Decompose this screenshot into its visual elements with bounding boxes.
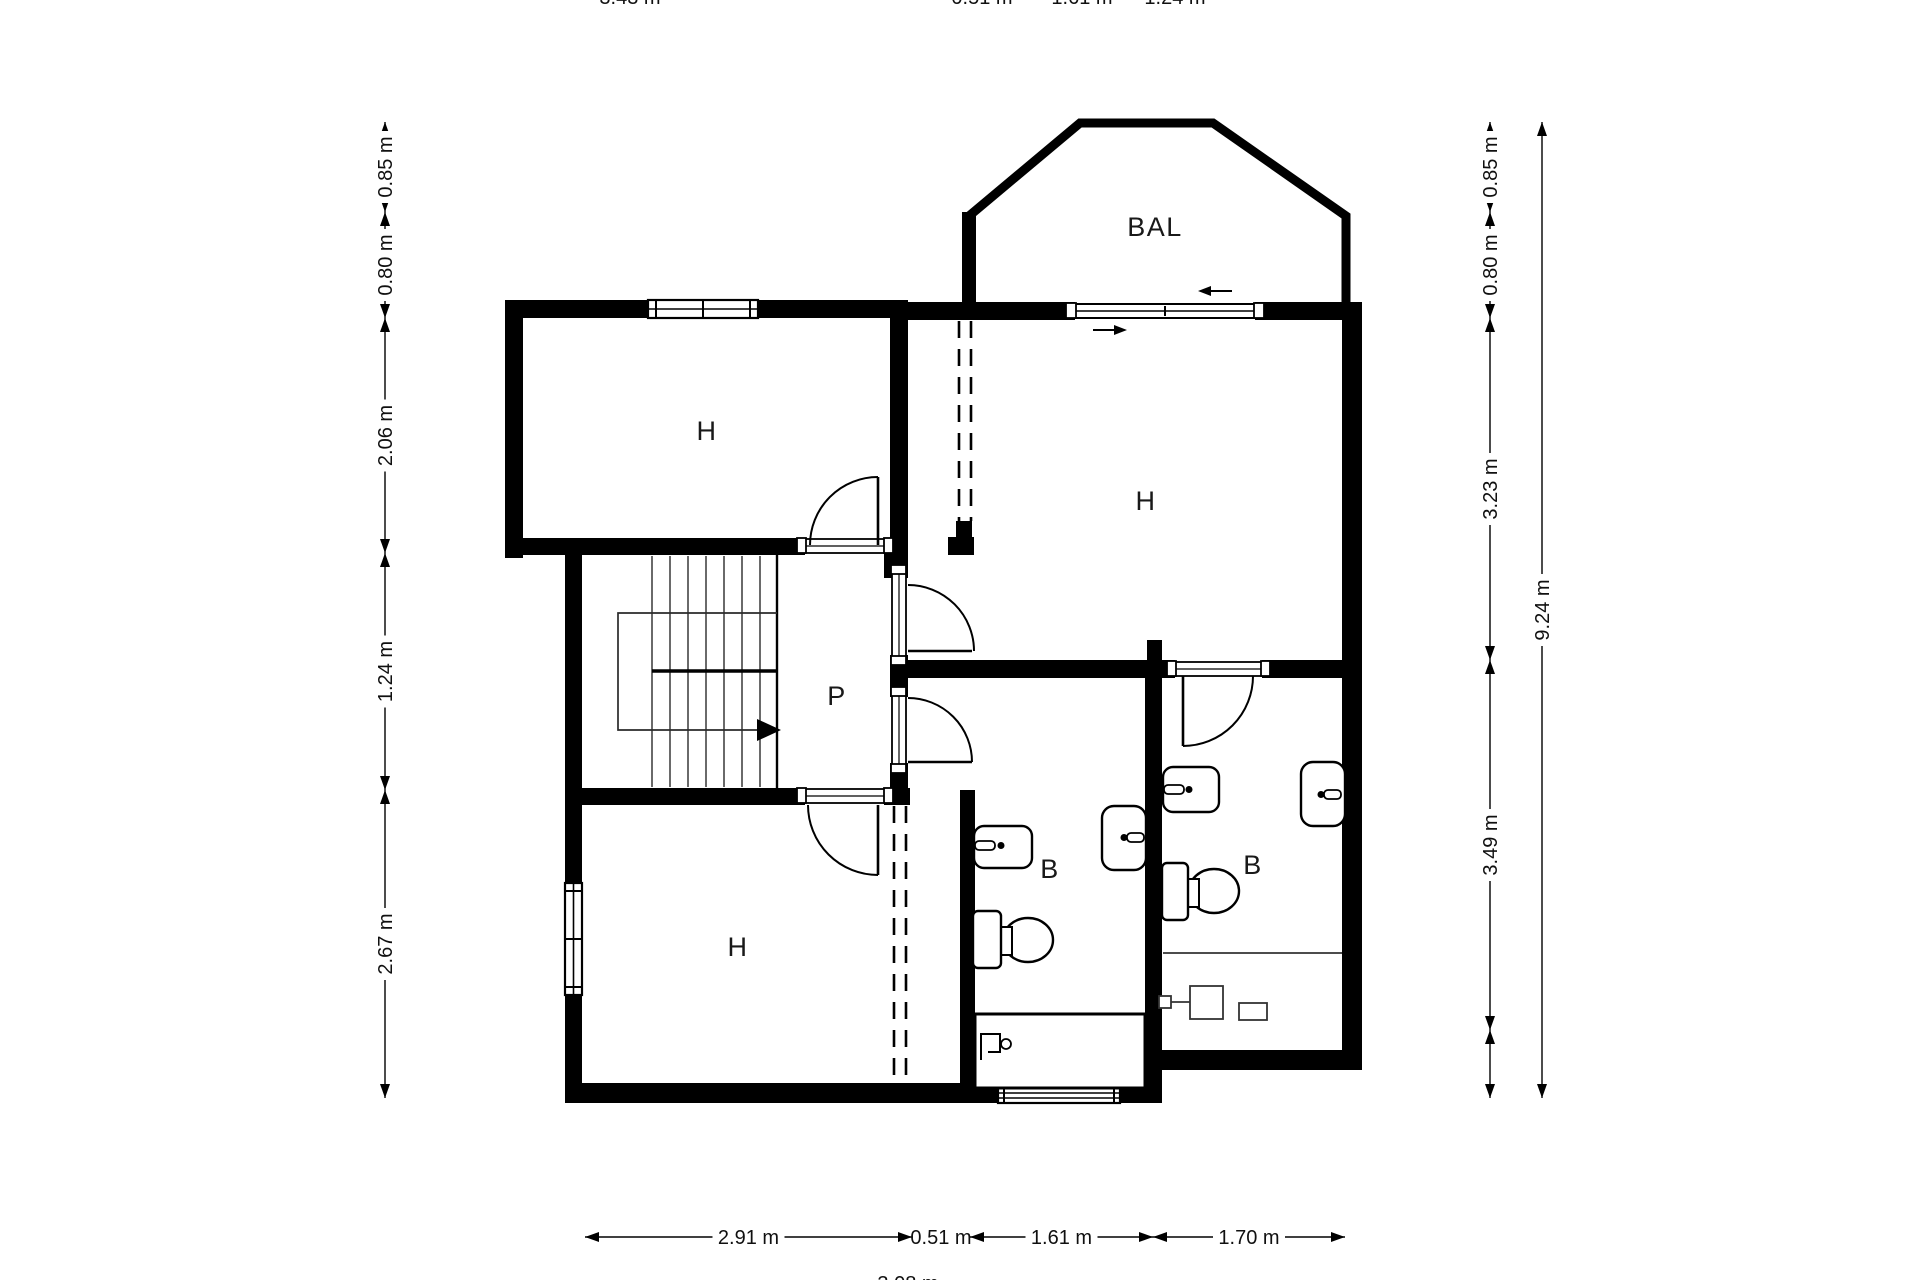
door-threshold [805,789,885,803]
door-threshold [892,695,906,765]
wall [505,300,523,558]
door-jamb [884,788,893,803]
sink-faucet-dot [1318,791,1325,798]
dimension-label-cropped: 0.51 m [951,0,1012,9]
dimension-label: 1.24 m [375,641,397,702]
door-jamb [891,656,906,665]
door-threshold [1175,662,1262,676]
door-threshold [892,573,906,657]
dimension-label: 2.67 m [375,913,397,974]
dimension-label-cropped: 3.43 m [599,0,660,9]
wall [1150,1050,1362,1070]
door-jamb [1066,303,1076,318]
room-label: P [827,681,847,711]
sink-icon [974,826,1032,868]
wall [758,300,908,318]
room-label: B [1243,850,1263,880]
floor-plan-svg: HHHPBBBAL0.85 m0.80 m2.06 m1.24 m2.67 m0… [0,0,1920,1280]
sliding-door [1075,304,1255,318]
dimension-label: 1.61 m [1031,1227,1092,1249]
floorplan-canvas: HHHPBBBAL0.85 m0.80 m2.06 m1.24 m2.67 m0… [0,0,1920,1280]
wall [505,300,648,318]
wall [565,788,805,805]
wall [890,300,908,573]
door-jamb [891,764,906,773]
door-jamb [797,538,806,553]
dimension-label: 2.06 m [375,405,397,466]
door-jamb [891,687,906,696]
sink-icon [1301,762,1345,826]
dimension: 0.85 m [374,122,397,212]
dimension-label: 3.49 m [1480,814,1502,875]
room-label: B [1040,854,1060,884]
sink-faucet [1324,790,1341,799]
wall [565,553,582,883]
door-jamb [797,788,806,803]
door-jamb [1167,661,1176,676]
window [648,300,758,318]
door-jamb [1261,661,1270,676]
door-jamb [891,565,906,574]
wall [1145,678,1162,1103]
room-label: BAL [1127,212,1183,242]
fixture-rect [1239,1003,1267,1020]
toilet-tank [1162,863,1188,920]
sink-faucet-dot [1186,786,1193,793]
window [565,883,582,995]
wall [565,1083,998,1103]
sink-faucet [975,841,995,850]
room-label: H [728,932,749,962]
bathtub-drain [1001,1039,1011,1049]
wall [1147,640,1162,664]
door-threshold [805,539,885,553]
room-label: H [1136,486,1157,516]
dimension-label: 0.80 m [375,234,397,295]
wall [956,521,972,537]
wall [890,660,1162,678]
dimension-label: 0.51 m [910,1227,971,1249]
wall [908,302,1075,320]
sink-faucet-dot [1121,834,1128,841]
door-jamb [884,538,893,553]
sink-icon [1102,806,1146,870]
dimension-label: 1.70 m [1218,1227,1279,1249]
dimension-label: 0.85 m [375,136,397,197]
dimension-label: 3.23 m [1480,458,1502,519]
toilet-tank [973,911,1001,968]
wall [948,537,974,555]
wall [505,538,805,555]
bathtub-icon [975,1014,1145,1088]
floorplan-page: HHHPBBBAL0.85 m0.80 m2.06 m1.24 m2.67 m0… [0,0,1920,1280]
dimension-label: 0.80 m [1480,234,1502,295]
dimension-label: 9.24 m [1532,579,1554,640]
room-label: H [697,416,718,446]
dimension-label-cropped: 3.08 m [877,1273,938,1280]
sink-faucet-dot [998,842,1005,849]
dimension-label: 0.85 m [1480,136,1502,197]
dimension-label: 2.91 m [718,1227,779,1249]
sink-faucet [1127,833,1144,842]
door-jamb [1254,303,1264,318]
dimension: 0.85 m [1479,122,1502,212]
dimension-label-cropped: 1.24 m [1144,0,1205,9]
sink-icon [1163,767,1219,812]
sink-faucet [1164,785,1184,794]
dimension-label-cropped: 1.61 m [1051,0,1112,9]
dimension: 0.51 m [910,1226,971,1249]
fixture-rect [1159,996,1171,1008]
fixture-rect [1190,986,1223,1019]
wall [1342,310,1362,1070]
